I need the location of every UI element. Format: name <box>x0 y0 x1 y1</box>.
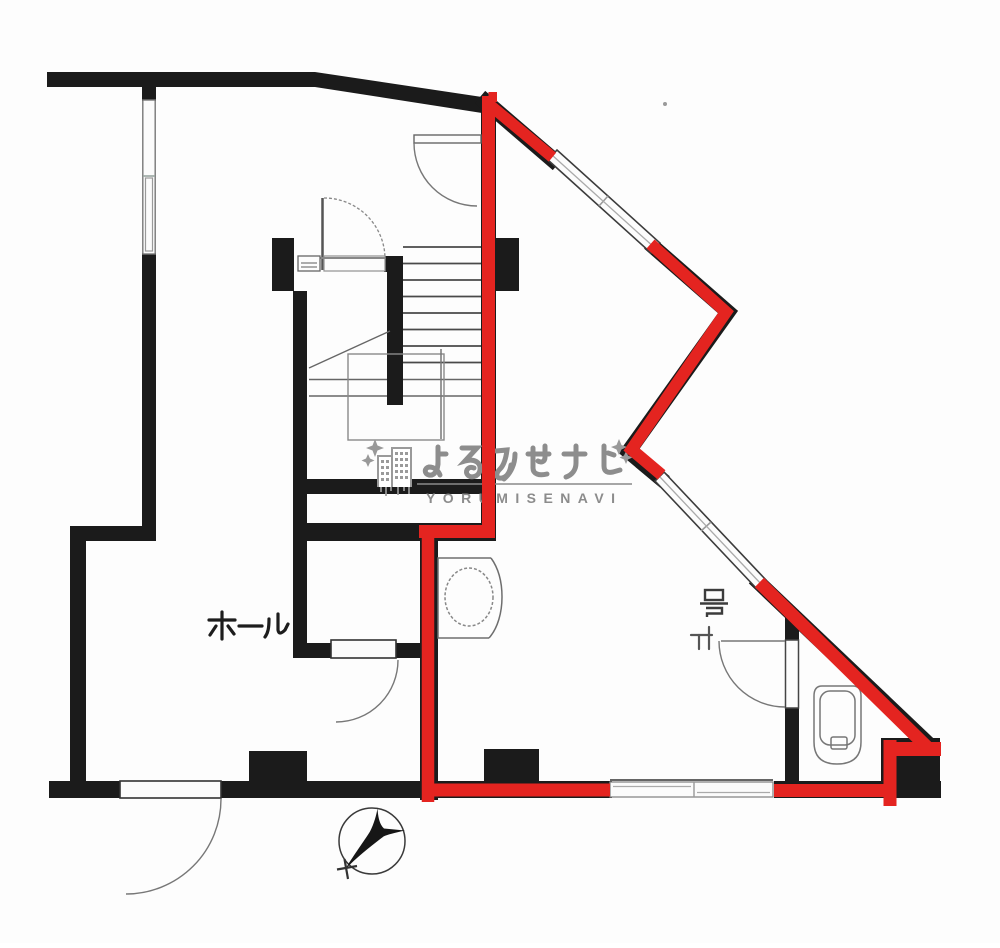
svg-text:YORUMISENAVI: YORUMISENAVI <box>426 490 622 506</box>
